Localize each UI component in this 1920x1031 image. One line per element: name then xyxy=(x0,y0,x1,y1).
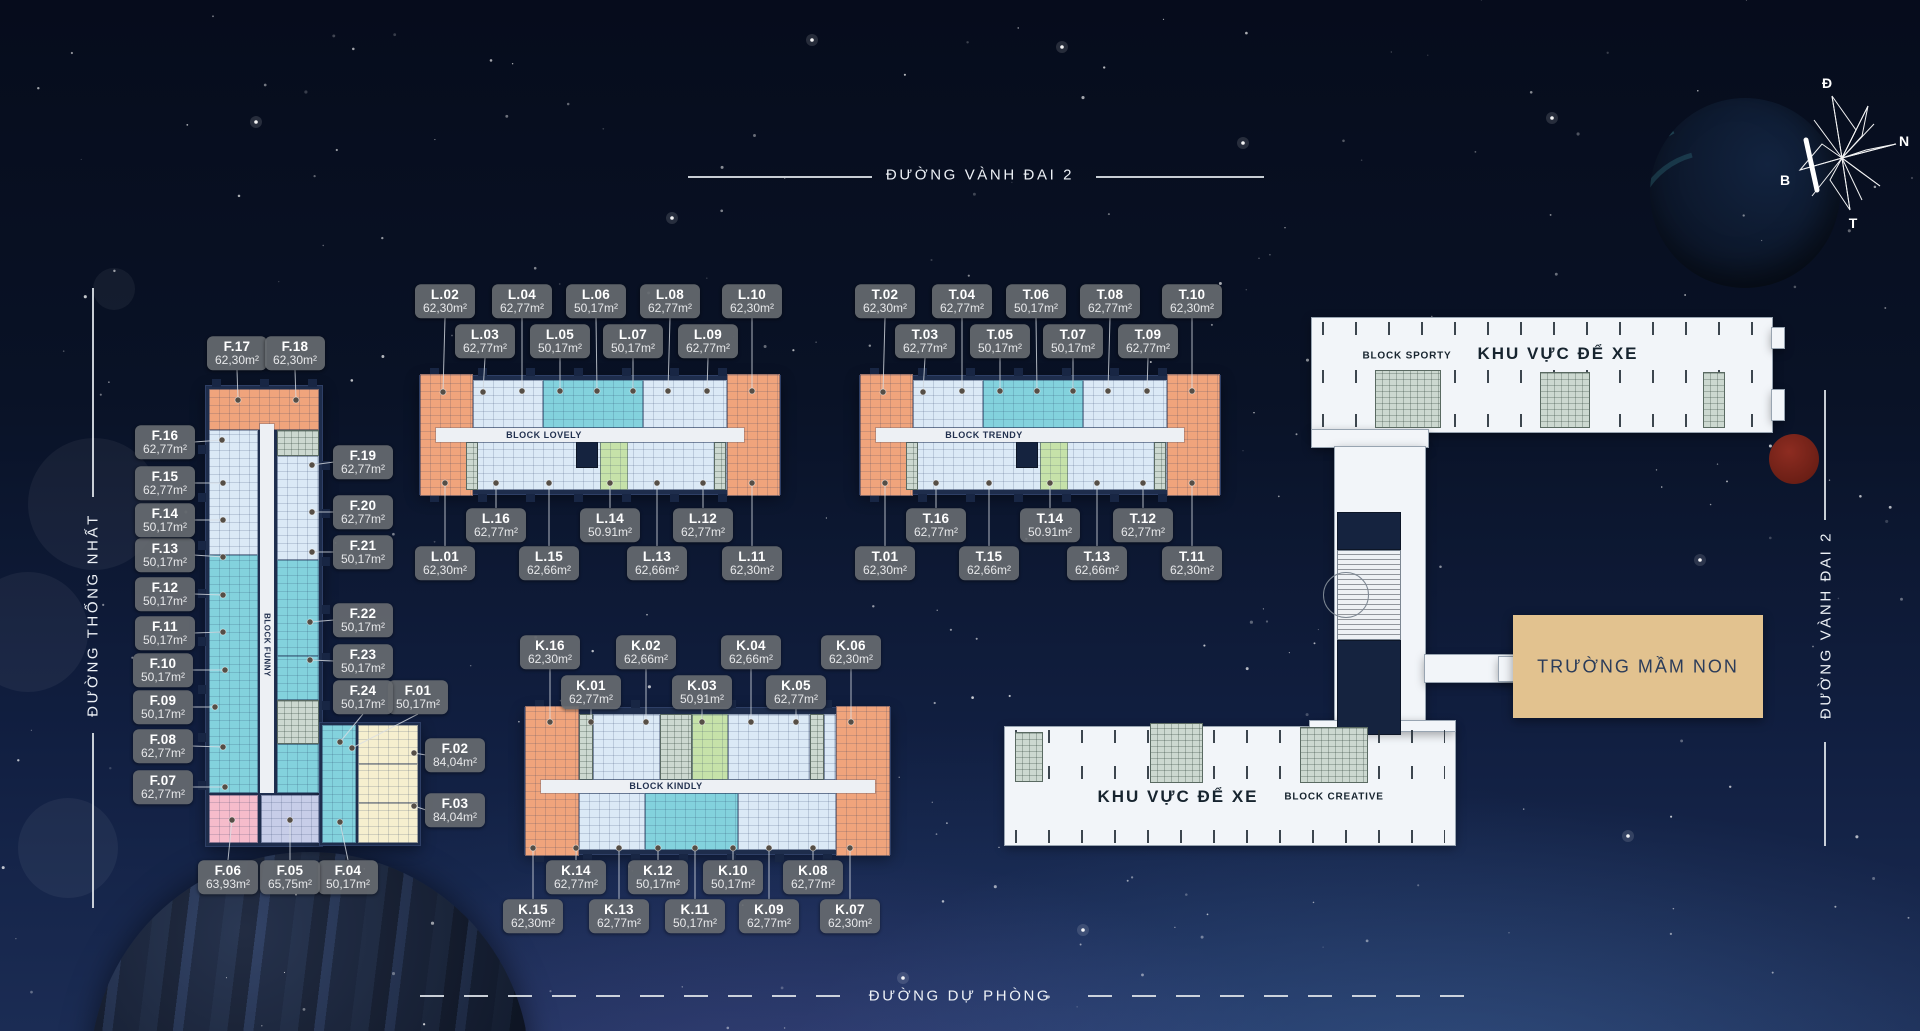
unit-callout-F.16[interactable]: F.1662,77m² xyxy=(135,425,195,459)
unit-callout-K.07[interactable]: K.0762,30m² xyxy=(820,899,880,933)
unit-callout-F.15[interactable]: F.1562,77m² xyxy=(135,466,195,500)
unit-code: T.06 xyxy=(1014,287,1058,302)
unit-area: 50,91m² xyxy=(680,693,724,706)
unit-callout-F.06[interactable]: F.0663,93m² xyxy=(198,860,258,894)
unit-code: K.02 xyxy=(624,638,668,653)
unit-callout-T.04[interactable]: T.0462,77m² xyxy=(932,284,992,318)
unit-callout-L.04[interactable]: L.0462,77m² xyxy=(492,284,552,318)
unit-callout-F.12[interactable]: F.1250,17m² xyxy=(135,577,195,611)
unit-code: K.01 xyxy=(569,678,613,693)
unit-code: T.16 xyxy=(914,511,958,526)
unit-code: F.04 xyxy=(326,863,370,878)
unit-area: 62,30m² xyxy=(511,917,555,930)
unit-callout-F.08[interactable]: F.0862,77m² xyxy=(133,729,193,763)
unit-area: 62,30m² xyxy=(863,564,907,577)
unit-code: K.03 xyxy=(680,678,724,693)
unit-area: 62,77m² xyxy=(747,917,791,930)
block-lovely-label: BLOCK LOVELY xyxy=(506,430,582,440)
compass-letter-north: B xyxy=(1780,172,1790,188)
unit-area: 50,17m² xyxy=(341,662,385,675)
unit-area: 62,30m² xyxy=(829,653,873,666)
unit-callout-T.01[interactable]: T.0162,30m² xyxy=(855,546,915,580)
unit-callout-L.14[interactable]: L.1450.91m² xyxy=(580,508,640,542)
kindergarten-label: TRƯỜNG MẦM NON xyxy=(1537,657,1739,678)
unit-code: K.06 xyxy=(829,638,873,653)
unit-callout-T.11[interactable]: T.1162,30m² xyxy=(1162,546,1222,580)
unit-code: F.17 xyxy=(215,339,259,354)
block-funny-label: BLOCK FUNNY xyxy=(263,613,272,677)
road-line xyxy=(688,176,872,178)
unit-code: F.20 xyxy=(341,498,385,513)
unit-code: F.14 xyxy=(143,506,187,521)
unit-callout-F.09[interactable]: F.0950,17m² xyxy=(133,690,193,724)
unit-callout-F.24[interactable]: F.2450,17m² xyxy=(333,680,393,714)
unit-area: 62,66m² xyxy=(635,564,679,577)
unit-area: 50,17m² xyxy=(143,521,187,534)
block-kindly-label: BLOCK KINDLY xyxy=(629,781,702,791)
unit-callout-K.03[interactable]: K.0350,91m² xyxy=(672,675,732,709)
unit-area: 62,77m² xyxy=(141,788,185,801)
unit-callout-L.05[interactable]: L.0550,17m² xyxy=(530,324,590,358)
unit-callout-T.10[interactable]: T.1062,30m² xyxy=(1162,284,1222,318)
unit-area: 50,17m² xyxy=(141,671,185,684)
unit-code: T.12 xyxy=(1121,511,1165,526)
unit-code: T.05 xyxy=(978,327,1022,342)
ghost-circle xyxy=(0,572,88,692)
unit-code: F.12 xyxy=(143,580,187,595)
unit-area: 65,75m² xyxy=(268,878,312,891)
unit-code: L.01 xyxy=(423,549,467,564)
unit-code: K.05 xyxy=(774,678,818,693)
unit-area: 62,30m² xyxy=(273,354,317,367)
unit-code: F.03 xyxy=(433,796,477,811)
unit-callout-K.13[interactable]: K.1362,77m² xyxy=(589,899,649,933)
unit-code: F.08 xyxy=(141,732,185,747)
unit-callout-L.10[interactable]: L.1062,30m² xyxy=(722,284,782,318)
unit-callout-K.15[interactable]: K.1562,30m² xyxy=(503,899,563,933)
unit-area: 62,77m² xyxy=(141,747,185,760)
unit-callout-F.13[interactable]: F.1350,17m² xyxy=(135,538,195,572)
unit-callout-F.22[interactable]: F.2250,17m² xyxy=(333,603,393,637)
unit-area: 62,30m² xyxy=(1170,302,1214,315)
unit-code: L.11 xyxy=(730,549,774,564)
unit-area: 50,17m² xyxy=(143,556,187,569)
red-planet-dot xyxy=(1769,434,1819,484)
unit-callout-T.07[interactable]: T.0750,17m² xyxy=(1043,324,1103,358)
unit-area: 50,17m² xyxy=(341,553,385,566)
unit-area: 50,17m² xyxy=(611,342,655,355)
road-line xyxy=(1824,742,1826,846)
unit-code: K.14 xyxy=(554,863,598,878)
road-line xyxy=(92,288,94,497)
unit-callout-T.03[interactable]: T.0362,77m² xyxy=(895,324,955,358)
road-line xyxy=(92,733,94,908)
unit-code: F.06 xyxy=(206,863,250,878)
unit-code: T.15 xyxy=(967,549,1011,564)
unit-callout-T.08[interactable]: T.0862,77m² xyxy=(1080,284,1140,318)
unit-area: 62,77m² xyxy=(341,463,385,476)
unit-area: 50,17m² xyxy=(326,878,370,891)
unit-code: K.10 xyxy=(711,863,755,878)
unit-callout-F.23[interactable]: F.2350,17m² xyxy=(333,644,393,678)
unit-area: 62,30m² xyxy=(423,564,467,577)
unit-callout-K.16[interactable]: K.1662,30m² xyxy=(520,635,580,669)
unit-callout-F.21[interactable]: F.2150,17m² xyxy=(333,535,393,569)
unit-callout-L.09[interactable]: L.0962,77m² xyxy=(678,324,738,358)
unit-callout-L.11[interactable]: L.1162,30m² xyxy=(722,546,782,580)
unit-callout-T.12[interactable]: T.1262,77m² xyxy=(1113,508,1173,542)
unit-callout-F.01[interactable]: F.0150,17m² xyxy=(388,680,448,714)
unit-code: K.07 xyxy=(828,902,872,917)
unit-code: L.14 xyxy=(588,511,632,526)
unit-area: 50,17m² xyxy=(396,698,440,711)
unit-area: 62,77m² xyxy=(341,513,385,526)
unit-code: T.01 xyxy=(863,549,907,564)
unit-area: 62,77m² xyxy=(681,526,725,539)
unit-callout-K.11[interactable]: K.1150,17m² xyxy=(665,899,725,933)
unit-callout-L.12[interactable]: L.1262,77m² xyxy=(673,508,733,542)
unit-code: T.03 xyxy=(903,327,947,342)
unit-area: 62,77m² xyxy=(569,693,613,706)
unit-code: F.16 xyxy=(143,428,187,443)
unit-area: 62,77m² xyxy=(940,302,984,315)
unit-callout-F.02[interactable]: F.0284,04m² xyxy=(425,738,485,772)
ghost-circle xyxy=(93,268,135,310)
unit-code: L.06 xyxy=(574,287,618,302)
unit-area: 62,77m² xyxy=(597,917,641,930)
unit-code: F.11 xyxy=(143,619,187,634)
unit-code: L.02 xyxy=(423,287,467,302)
unit-area: 62,77m² xyxy=(774,693,818,706)
unit-code: K.15 xyxy=(511,902,555,917)
unit-callout-T.05[interactable]: T.0550,17m² xyxy=(970,324,1030,358)
unit-callout-L.02[interactable]: L.0262,30m² xyxy=(415,284,475,318)
unit-code: F.07 xyxy=(141,773,185,788)
unit-area: 62,77m² xyxy=(143,443,187,456)
unit-callout-K.08[interactable]: K.0862,77m² xyxy=(783,860,843,894)
unit-callout-T.09[interactable]: T.0962,77m² xyxy=(1118,324,1178,358)
unit-code: K.12 xyxy=(636,863,680,878)
unit-code: T.07 xyxy=(1051,327,1095,342)
unit-callout-K.06[interactable]: K.0662,30m² xyxy=(821,635,881,669)
unit-area: 62,66m² xyxy=(527,564,571,577)
unit-callout-K.10[interactable]: K.1050,17m² xyxy=(703,860,763,894)
unit-code: T.02 xyxy=(863,287,907,302)
unit-code: L.13 xyxy=(635,549,679,564)
unit-area: 62,66m² xyxy=(729,653,773,666)
unit-code: L.05 xyxy=(538,327,582,342)
unit-code: K.04 xyxy=(729,638,773,653)
unit-area: 62,30m² xyxy=(828,917,872,930)
unit-callout-F.19[interactable]: F.1962,77m² xyxy=(333,445,393,479)
unit-area: 50,17m² xyxy=(143,634,187,647)
unit-area: 50,17m² xyxy=(978,342,1022,355)
compass-rose: Đ N B T xyxy=(1770,58,1920,238)
unit-code: L.16 xyxy=(474,511,518,526)
unit-code: K.09 xyxy=(747,902,791,917)
unit-code: T.10 xyxy=(1170,287,1214,302)
unit-area: 62,30m² xyxy=(423,302,467,315)
parking-top-label: KHU VỰC ĐỂ XE xyxy=(1477,344,1638,364)
unit-callout-F.04[interactable]: F.0450,17m² xyxy=(318,860,378,894)
unit-area: 62,77m² xyxy=(474,526,518,539)
unit-area: 62,77m² xyxy=(1121,526,1165,539)
unit-code: L.07 xyxy=(611,327,655,342)
unit-code: F.21 xyxy=(341,538,385,553)
unit-area: 50,17m² xyxy=(341,621,385,634)
unit-area: 62,77m² xyxy=(500,302,544,315)
unit-callout-K.01[interactable]: K.0162,77m² xyxy=(561,675,621,709)
unit-code: F.01 xyxy=(396,683,440,698)
unit-area: 62,77m² xyxy=(648,302,692,315)
parking-bottom-label: KHU VỰC ĐỂ XE xyxy=(1097,787,1258,807)
unit-callout-L.07[interactable]: L.0750,17m² xyxy=(603,324,663,358)
unit-area: 50,17m² xyxy=(673,917,717,930)
unit-area: 50,17m² xyxy=(141,708,185,721)
street-label-bottom: ĐƯỜNG DỰ PHÒNG xyxy=(869,988,1051,1005)
unit-callout-T.13[interactable]: T.1362,66m² xyxy=(1067,546,1127,580)
unit-callout-K.14[interactable]: K.1462,77m² xyxy=(546,860,606,894)
unit-code: T.09 xyxy=(1126,327,1170,342)
unit-callout-T.16[interactable]: T.1662,77m² xyxy=(906,508,966,542)
unit-callout-T.15[interactable]: T.1562,66m² xyxy=(959,546,1019,580)
unit-area: 62,77m² xyxy=(143,484,187,497)
unit-area: 62,66m² xyxy=(967,564,1011,577)
unit-area: 62,66m² xyxy=(1075,564,1119,577)
unit-code: L.09 xyxy=(686,327,730,342)
unit-code: F.15 xyxy=(143,469,187,484)
unit-code: F.13 xyxy=(143,541,187,556)
unit-area: 50,17m² xyxy=(711,878,755,891)
unit-area: 62,30m² xyxy=(528,653,572,666)
unit-callout-F.17[interactable]: F.1762,30m² xyxy=(207,336,267,370)
unit-callout-K.02[interactable]: K.0262,66m² xyxy=(616,635,676,669)
unit-callout-K.04[interactable]: K.0462,66m² xyxy=(721,635,781,669)
unit-code: F.09 xyxy=(141,693,185,708)
block-trendy-label: BLOCK TRENDY xyxy=(945,430,1023,440)
street-label-right: ĐƯỜNG VÀNH ĐAI 2 xyxy=(1818,531,1835,719)
unit-code: T.14 xyxy=(1028,511,1072,526)
compass-letter-east: Đ xyxy=(1822,75,1832,91)
unit-area: 62,77m² xyxy=(686,342,730,355)
unit-area: 50,17m² xyxy=(1051,342,1095,355)
unit-callout-K.09[interactable]: K.0962,77m² xyxy=(739,899,799,933)
unit-callout-L.01[interactable]: L.0162,30m² xyxy=(415,546,475,580)
road-dash xyxy=(1088,995,1466,997)
unit-code: L.10 xyxy=(730,287,774,302)
unit-code: T.13 xyxy=(1075,549,1119,564)
road-line xyxy=(1096,176,1264,178)
street-label-top: ĐƯỜNG VÀNH ĐAI 2 xyxy=(886,167,1074,184)
unit-area: 62,30m² xyxy=(1170,564,1214,577)
unit-callout-T.06[interactable]: T.0650,17m² xyxy=(1006,284,1066,318)
unit-callout-F.05[interactable]: F.0565,75m² xyxy=(260,860,320,894)
unit-code: F.02 xyxy=(433,741,477,756)
road-line xyxy=(1824,390,1826,520)
unit-code: K.11 xyxy=(673,902,717,917)
unit-area: 50.91m² xyxy=(1028,526,1072,539)
unit-code: F.19 xyxy=(341,448,385,463)
unit-code: F.05 xyxy=(268,863,312,878)
unit-callout-T.14[interactable]: T.1450.91m² xyxy=(1020,508,1080,542)
block-sporty-label: BLOCK SPORTY xyxy=(1362,351,1451,362)
unit-area: 62,30m² xyxy=(730,564,774,577)
unit-area: 50,17m² xyxy=(341,698,385,711)
unit-code: L.04 xyxy=(500,287,544,302)
unit-area: 50.91m² xyxy=(588,526,632,539)
unit-callout-K.12[interactable]: K.1250,17m² xyxy=(628,860,688,894)
site-plan-canvas: ĐƯỜNG VÀNH ĐAI 2 ĐƯỜNG THỐNG NHẤT ĐƯỜNG … xyxy=(0,0,1920,1031)
unit-code: T.04 xyxy=(940,287,984,302)
unit-code: F.10 xyxy=(141,656,185,671)
unit-code: L.12 xyxy=(681,511,725,526)
unit-code: T.11 xyxy=(1170,549,1214,564)
unit-area: 62,66m² xyxy=(624,653,668,666)
unit-area: 84,04m² xyxy=(433,756,477,769)
unit-callout-L.03[interactable]: L.0362,77m² xyxy=(455,324,515,358)
unit-area: 84,04m² xyxy=(433,811,477,824)
unit-area: 62,77m² xyxy=(1088,302,1132,315)
unit-code: K.08 xyxy=(791,863,835,878)
unit-area: 62,77m² xyxy=(914,526,958,539)
unit-callout-K.05[interactable]: K.0562,77m² xyxy=(766,675,826,709)
road-dash xyxy=(420,995,858,997)
unit-code: F.18 xyxy=(273,339,317,354)
compass-letter-south: N xyxy=(1899,133,1909,149)
unit-callout-L.06[interactable]: L.0650,17m² xyxy=(566,284,626,318)
unit-area: 50,17m² xyxy=(636,878,680,891)
unit-code: K.13 xyxy=(597,902,641,917)
unit-callout-L.16[interactable]: L.1662,77m² xyxy=(466,508,526,542)
unit-area: 62,30m² xyxy=(730,302,774,315)
unit-callout-L.15[interactable]: L.1562,66m² xyxy=(519,546,579,580)
unit-callout-T.02[interactable]: T.0262,30m² xyxy=(855,284,915,318)
unit-callout-F.20[interactable]: F.2062,77m² xyxy=(333,495,393,529)
unit-callout-F.07[interactable]: F.0762,77m² xyxy=(133,770,193,804)
unit-area: 62,30m² xyxy=(215,354,259,367)
unit-code: L.08 xyxy=(648,287,692,302)
unit-area: 50,17m² xyxy=(538,342,582,355)
unit-code: F.23 xyxy=(341,647,385,662)
unit-code: F.22 xyxy=(341,606,385,621)
unit-code: L.03 xyxy=(463,327,507,342)
unit-area: 50,17m² xyxy=(574,302,618,315)
unit-area: 50,17m² xyxy=(143,595,187,608)
street-label-left: ĐƯỜNG THỐNG NHẤT xyxy=(85,513,102,717)
unit-area: 62,30m² xyxy=(863,302,907,315)
unit-area: 62,77m² xyxy=(903,342,947,355)
unit-area: 62,77m² xyxy=(463,342,507,355)
unit-callout-F.03[interactable]: F.0384,04m² xyxy=(425,793,485,827)
block-creative-label: BLOCK CREATIVE xyxy=(1284,792,1383,803)
unit-area: 50,17m² xyxy=(1014,302,1058,315)
unit-callout-L.08[interactable]: L.0862,77m² xyxy=(640,284,700,318)
compass-letter-west: T xyxy=(1849,215,1858,231)
unit-area: 62,77m² xyxy=(554,878,598,891)
unit-area: 62,77m² xyxy=(791,878,835,891)
unit-area: 63,93m² xyxy=(206,878,250,891)
unit-callout-F.18[interactable]: F.1862,30m² xyxy=(265,336,325,370)
unit-code: F.24 xyxy=(341,683,385,698)
unit-callout-L.13[interactable]: L.1362,66m² xyxy=(627,546,687,580)
unit-code: L.15 xyxy=(527,549,571,564)
unit-callout-F.14[interactable]: F.1450,17m² xyxy=(135,503,195,537)
unit-code: K.16 xyxy=(528,638,572,653)
unit-code: T.08 xyxy=(1088,287,1132,302)
unit-area: 62,77m² xyxy=(1126,342,1170,355)
unit-callout-F.11[interactable]: F.1150,17m² xyxy=(135,616,195,650)
ghost-circle xyxy=(18,798,118,898)
unit-callout-F.10[interactable]: F.1050,17m² xyxy=(133,653,193,687)
